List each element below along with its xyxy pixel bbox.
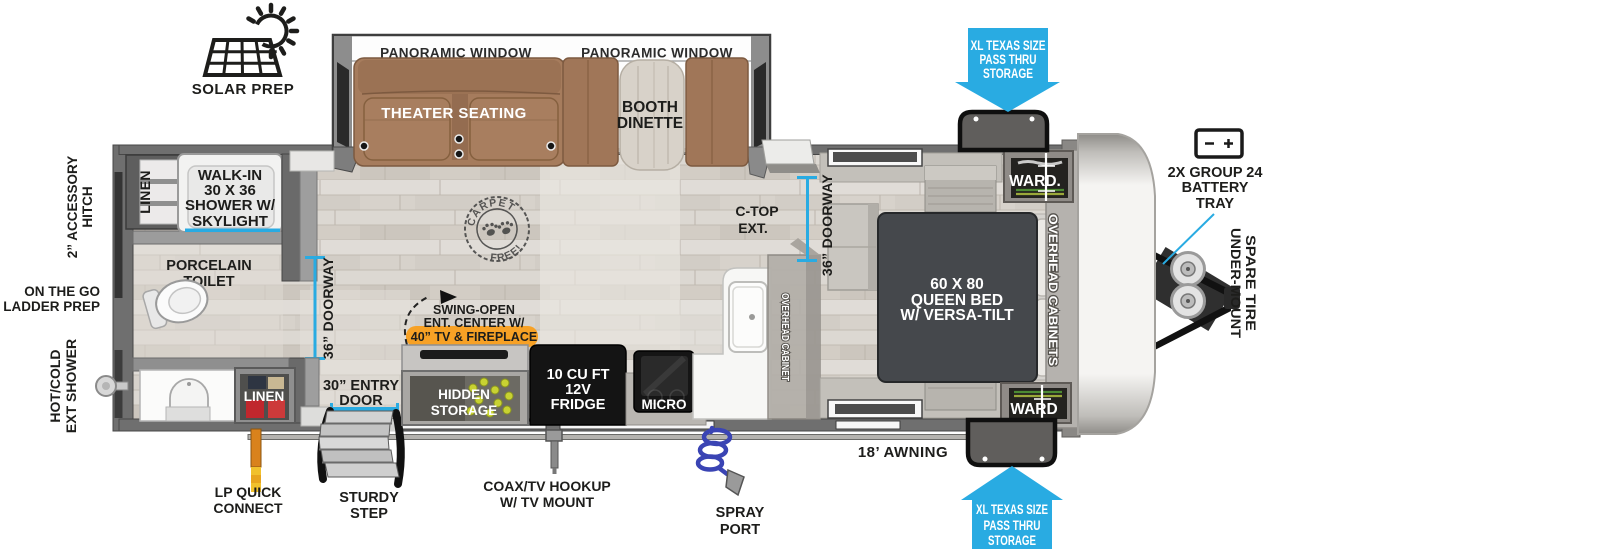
svg-text:PORT: PORT: [720, 522, 760, 538]
svg-text:LP QUICK: LP QUICK: [215, 484, 282, 500]
svg-text:PASS THRU: PASS THRU: [984, 518, 1041, 533]
svg-text:10 CU FT: 10 CU FT: [547, 367, 610, 383]
svg-text:EXT.: EXT.: [738, 220, 768, 236]
svg-text:STEP: STEP: [350, 506, 388, 522]
svg-text:CONNECT: CONNECT: [213, 500, 283, 516]
svg-text:2X GROUP 24: 2X GROUP 24: [1168, 165, 1263, 181]
svg-text:TRAY: TRAY: [1196, 196, 1234, 212]
svg-text:ENT. CENTER W/: ENT. CENTER W/: [424, 316, 525, 330]
svg-text:OVERHEAD CABINETS: OVERHEAD CABINETS: [1046, 214, 1058, 366]
svg-text:WARD: WARD: [1010, 401, 1057, 418]
svg-text:HITCH: HITCH: [80, 186, 95, 227]
svg-text:PORCELAIN: PORCELAIN: [166, 258, 251, 274]
svg-text:30” ENTRY: 30” ENTRY: [323, 378, 399, 394]
svg-text:EXT SHOWER: EXT SHOWER: [63, 339, 79, 433]
svg-text:DINETTE: DINETTE: [617, 115, 683, 132]
svg-text:WARD.: WARD.: [1009, 173, 1061, 190]
svg-text:SOLAR PREP: SOLAR PREP: [192, 81, 295, 98]
svg-text:FRIDGE: FRIDGE: [551, 397, 606, 413]
svg-text:LINEN: LINEN: [137, 170, 153, 214]
svg-text:W/ VERSA-TILT: W/ VERSA-TILT: [900, 307, 1014, 324]
svg-text:XL TEXAS SIZE: XL TEXAS SIZE: [971, 38, 1046, 53]
svg-text:C-TOP: C-TOP: [735, 203, 778, 219]
svg-text:40” TV & FIREPLACE: 40” TV & FIREPLACE: [411, 330, 537, 344]
svg-text:MICRO: MICRO: [642, 397, 687, 412]
svg-text:XL TEXAS SIZE: XL TEXAS SIZE: [976, 502, 1048, 517]
svg-text:W/ TV MOUNT: W/ TV MOUNT: [500, 494, 595, 510]
svg-text:18’ AWNING: 18’ AWNING: [858, 444, 948, 461]
svg-text:DOOR: DOOR: [339, 393, 383, 409]
svg-text:UNDER-MOUNT: UNDER-MOUNT: [1228, 228, 1244, 338]
svg-text:HOT/COLD: HOT/COLD: [47, 349, 63, 422]
svg-text:SPRAY: SPRAY: [716, 505, 765, 521]
svg-text:STURDY: STURDY: [339, 490, 399, 506]
svg-text:COAX/TV HOOKUP: COAX/TV HOOKUP: [483, 478, 611, 494]
svg-text:2” ACCESSORY: 2” ACCESSORY: [65, 156, 80, 259]
svg-text:STORAGE: STORAGE: [983, 66, 1033, 81]
svg-text:36” DOORWAY: 36” DOORWAY: [819, 174, 835, 276]
svg-text:ON THE GO: ON THE GO: [24, 284, 100, 299]
svg-text:BATTERY: BATTERY: [1182, 180, 1249, 196]
svg-text:SKYLIGHT: SKYLIGHT: [192, 213, 268, 230]
svg-text:LADDER PREP: LADDER PREP: [3, 299, 100, 314]
svg-text:60 X 80: 60 X 80: [930, 276, 983, 293]
svg-text:SHOWER W/: SHOWER W/: [185, 197, 276, 214]
svg-text:SPARE TIRE: SPARE TIRE: [1243, 235, 1259, 331]
svg-text:STORAGE: STORAGE: [988, 533, 1036, 548]
svg-text:SWING-OPEN: SWING-OPEN: [433, 303, 515, 317]
svg-text:BOOTH: BOOTH: [622, 99, 678, 116]
svg-text:OVERHEAD CABINET: OVERHEAD CABINET: [779, 293, 791, 381]
svg-text:HIDDEN: HIDDEN: [438, 387, 490, 402]
svg-text:LINEN: LINEN: [244, 389, 285, 404]
svg-text:PASS THRU: PASS THRU: [980, 52, 1037, 67]
svg-text:36” DOORWAY: 36” DOORWAY: [320, 257, 336, 359]
svg-text:STORAGE: STORAGE: [431, 403, 498, 418]
svg-text:THEATER SEATING: THEATER SEATING: [381, 105, 526, 122]
svg-text:12V: 12V: [565, 382, 591, 398]
